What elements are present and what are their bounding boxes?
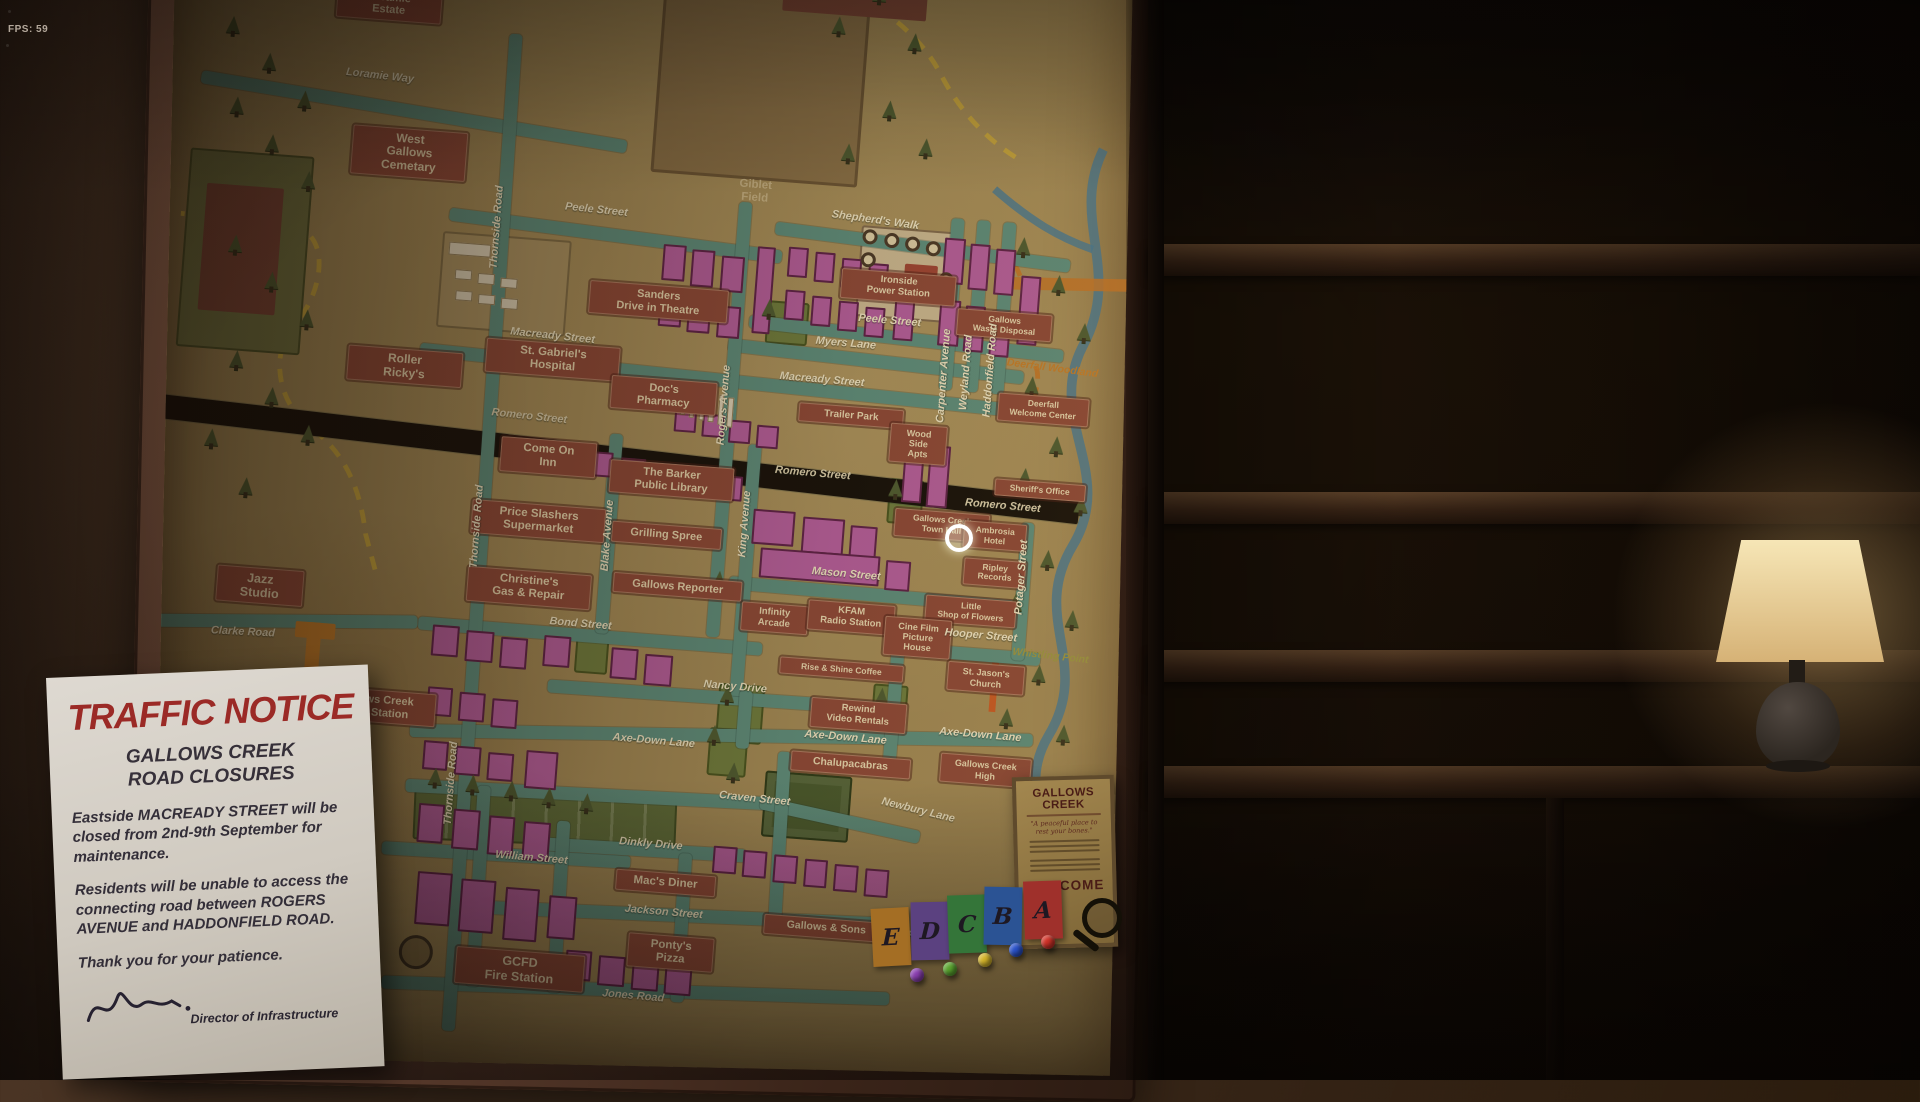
map-tree-icon [265, 387, 280, 405]
map-tree-icon [907, 33, 922, 51]
map-tree-icon [466, 774, 481, 792]
poster-rule [1027, 813, 1101, 817]
map-house-block [430, 624, 460, 657]
poster-text-line [1030, 858, 1100, 862]
map-house-block [833, 864, 859, 893]
sticky-note-letter: A [1034, 896, 1053, 924]
map-house-block [451, 809, 481, 850]
map-tree-icon [300, 424, 315, 442]
notice-subtitle: GALLOWS CREEK ROAD CLOSURES [69, 737, 353, 794]
push-pin[interactable] [1009, 943, 1023, 957]
map-house-block [458, 692, 486, 723]
fps-counter: FPS: 59 [8, 24, 48, 35]
notice-paragraph-1: Eastside MACREADY STREET will be closed … [71, 797, 355, 867]
poster-text-line [1029, 839, 1099, 843]
map-tree-icon [1031, 664, 1046, 682]
map-street [152, 614, 418, 629]
sticky-note[interactable]: A [1023, 880, 1063, 939]
lamp-body [1756, 682, 1840, 768]
map-tree-icon [262, 52, 277, 70]
map-house-block [803, 859, 829, 888]
map-tree-icon [918, 137, 933, 155]
map-tree-icon [542, 787, 557, 805]
sticky-note-letter: B [992, 902, 1014, 929]
game-screen: { "hud": {"fps_label": "FPS: 59"}, "traf… [0, 0, 1920, 1080]
sticky-note-letter: C [957, 910, 976, 938]
map-house-block [502, 887, 540, 942]
map-house-block [993, 249, 1017, 296]
map-building: Cine Film Picture House [883, 616, 953, 660]
map-house-block [784, 290, 806, 321]
map-house-block [609, 647, 639, 680]
map-tree-icon [841, 143, 856, 161]
map-tree-icon [1049, 435, 1064, 453]
notice-paragraph-3: Thank you for your patience. [78, 942, 361, 973]
map-house-block [756, 425, 780, 450]
map-tree-icon [1077, 322, 1092, 340]
push-pin[interactable] [910, 968, 924, 982]
game-cursor [945, 524, 973, 552]
map-house-block [800, 517, 845, 556]
sticky-note-letter: D [919, 917, 940, 944]
sticky-note[interactable]: D [910, 902, 949, 961]
map-house-block [690, 249, 716, 287]
map-detail-bar [454, 269, 472, 281]
map-building: Ponty's Pizza [626, 932, 715, 973]
map-tree-icon [226, 15, 241, 33]
map-house-block [720, 255, 746, 293]
map-building: Jazz Studio [215, 564, 304, 607]
map-tree-icon [300, 309, 315, 327]
map-house-block [464, 630, 494, 663]
map-detail-bar [477, 294, 495, 306]
map-tree-icon [1025, 376, 1040, 394]
map-house-block [837, 301, 859, 332]
map-building: Wood Side Apts [888, 423, 948, 466]
map-tree-icon [1016, 237, 1031, 255]
notice-text: . [330, 910, 335, 927]
map-house-block [863, 868, 889, 897]
map-house-block [968, 243, 992, 290]
map-detail-bar [500, 298, 518, 310]
map-house-block [810, 295, 832, 326]
sticky-note[interactable]: E [871, 907, 912, 967]
map-tree-icon [831, 16, 846, 34]
sticky-note[interactable]: B [983, 887, 1022, 946]
shelf-board [1148, 492, 1920, 524]
map-tree-icon [264, 271, 279, 289]
map-building: Infinity Arcade [740, 601, 809, 636]
notice-title: TRAFFIC NOTICE [67, 685, 351, 739]
poster-title: GALLOWS CREEK [1022, 786, 1105, 812]
map-house-block [661, 244, 687, 282]
map-house-block [458, 879, 496, 934]
map-house-block [772, 854, 798, 883]
map-house-block [742, 850, 768, 879]
notice-text: Eastside [72, 807, 139, 827]
poster-text-line [1030, 844, 1100, 848]
record-divider [1546, 798, 1564, 1080]
map-house-block [884, 560, 911, 592]
map-building: St. Jason's Church [946, 661, 1025, 695]
push-pin[interactable] [943, 962, 957, 976]
map-house-block [546, 895, 578, 941]
notice-road-name: HADDONFIELD ROAD [173, 910, 331, 934]
lamp-base [1766, 760, 1830, 772]
screen-speck [6, 44, 9, 47]
map-detail-bar [455, 290, 473, 302]
map-house-block [751, 509, 796, 548]
poster-text-line [1030, 868, 1100, 872]
map-house-block [814, 252, 836, 283]
map-tree-icon [265, 133, 280, 151]
map-tree-icon [579, 793, 594, 811]
map-tree-icon [762, 298, 777, 316]
map-house-block [643, 653, 673, 686]
map-house-block [524, 750, 558, 790]
map-tree-icon [707, 725, 722, 743]
notice-signature: Director of Infrastructure [79, 971, 363, 1043]
map-house-block [414, 871, 452, 926]
map-house-block [490, 698, 518, 729]
map-house-block [486, 752, 514, 783]
sticky-note[interactable]: C [947, 894, 987, 953]
map-tree-icon [229, 349, 244, 367]
map-tree-icon [1052, 274, 1067, 292]
poster-tagline: "A peaceful place to rest your bones." [1023, 818, 1105, 836]
map-tree-icon [301, 171, 316, 189]
screen-speck [8, 10, 11, 13]
notice-signature-role: Director of Infrastructure [190, 1006, 338, 1026]
magnifying-glass[interactable] [1082, 898, 1122, 938]
map-house-block [542, 635, 572, 668]
map-tree-icon [726, 762, 741, 780]
map-tree-icon [1056, 724, 1071, 742]
shelf-stile [1148, 0, 1164, 1080]
map-tree-icon [239, 477, 254, 495]
shelf-board [1148, 244, 1920, 276]
map-tree-icon [999, 708, 1014, 726]
signature-scribble [79, 978, 201, 1035]
map-tree-icon [230, 96, 245, 114]
map-house-block [787, 247, 809, 278]
map-house-block [499, 637, 529, 670]
map-building: West Gallows Cemetary [350, 124, 468, 182]
map-house-block [597, 955, 626, 987]
map-tree-icon [888, 478, 903, 496]
map-tree-icon [504, 780, 519, 798]
poster-text-line [1030, 849, 1100, 853]
push-pin[interactable] [978, 953, 992, 967]
map-house-block [711, 845, 737, 874]
notice-text: and [138, 917, 174, 935]
map-detail-bar [500, 277, 518, 289]
sticky-note-letter: E [882, 923, 900, 951]
lamp-shade[interactable] [1716, 540, 1884, 662]
map-tree-icon [229, 234, 244, 252]
traffic-notice[interactable]: TRAFFIC NOTICE GALLOWS CREEK ROAD CLOSUR… [46, 665, 385, 1080]
map-tree-icon [1064, 609, 1079, 627]
poster-text-line [1030, 863, 1100, 867]
map-detail-bar [477, 273, 495, 285]
map-tree-icon [428, 768, 443, 786]
notice-paragraph-2: Residents will be unable to access the c… [75, 869, 359, 939]
map-tree-icon [204, 428, 219, 446]
map-tree-icon [297, 90, 312, 108]
push-pin[interactable] [1041, 935, 1055, 949]
map-tree-icon [1040, 550, 1055, 568]
map-tree-icon [883, 100, 898, 118]
notice-subtitle-line2: ROAD CLOSURES [127, 762, 295, 790]
